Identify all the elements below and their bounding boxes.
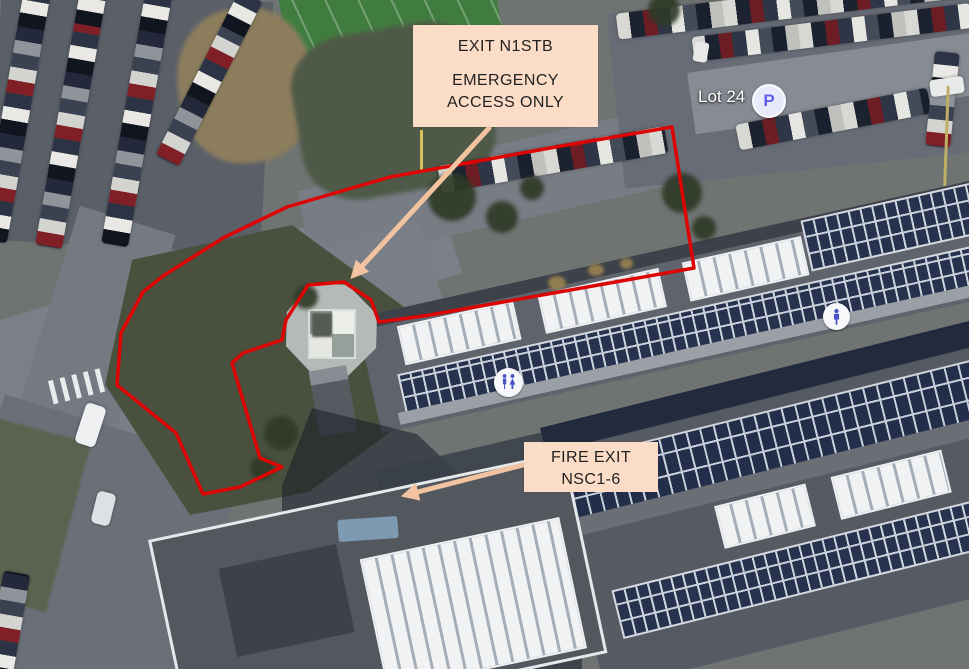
parking-icon-letter: P (763, 91, 774, 111)
tree (428, 173, 476, 221)
fire-callout-line1: FIRE EXIT (524, 447, 658, 469)
crosswalk-stripe (94, 368, 105, 392)
courtyard (219, 544, 355, 657)
exit-callout-line2: EMERGENCY (413, 70, 598, 92)
light-pole (420, 130, 423, 170)
tree (692, 216, 716, 240)
person-glyph (827, 307, 846, 326)
fire-exit-callout-box: FIRE EXIT NSC1-6 (524, 442, 658, 492)
parking-icon[interactable]: P (752, 84, 786, 118)
crosswalk-stripe (83, 371, 94, 395)
fire-callout-line2: NSC1-6 (524, 469, 658, 491)
blue-bus (337, 516, 398, 542)
crosswalk-stripe (71, 374, 82, 398)
exit-callout-line3: ACCESS ONLY (413, 92, 598, 114)
restroom-glyph (498, 372, 519, 393)
tree (264, 416, 298, 450)
tree (250, 456, 274, 480)
restroom-icon[interactable] (494, 368, 523, 397)
rooftop-units (360, 517, 587, 669)
tree (662, 173, 702, 213)
tree (486, 201, 518, 233)
exit-callout-line1: EXIT N1STB (413, 36, 598, 58)
bush (588, 264, 604, 276)
tree (294, 285, 318, 309)
bush (548, 276, 566, 290)
lot-label: Lot 24 (698, 87, 745, 107)
annotated-satellite-map: Lot 24 P (0, 0, 969, 669)
octagon-reflection (312, 313, 332, 337)
person-icon[interactable] (823, 303, 850, 330)
exit-callout-box: EXIT N1STB EMERGENCY ACCESS ONLY (413, 25, 598, 127)
bush (620, 258, 633, 269)
crosswalk-stripe (60, 377, 71, 401)
tree (520, 176, 544, 200)
